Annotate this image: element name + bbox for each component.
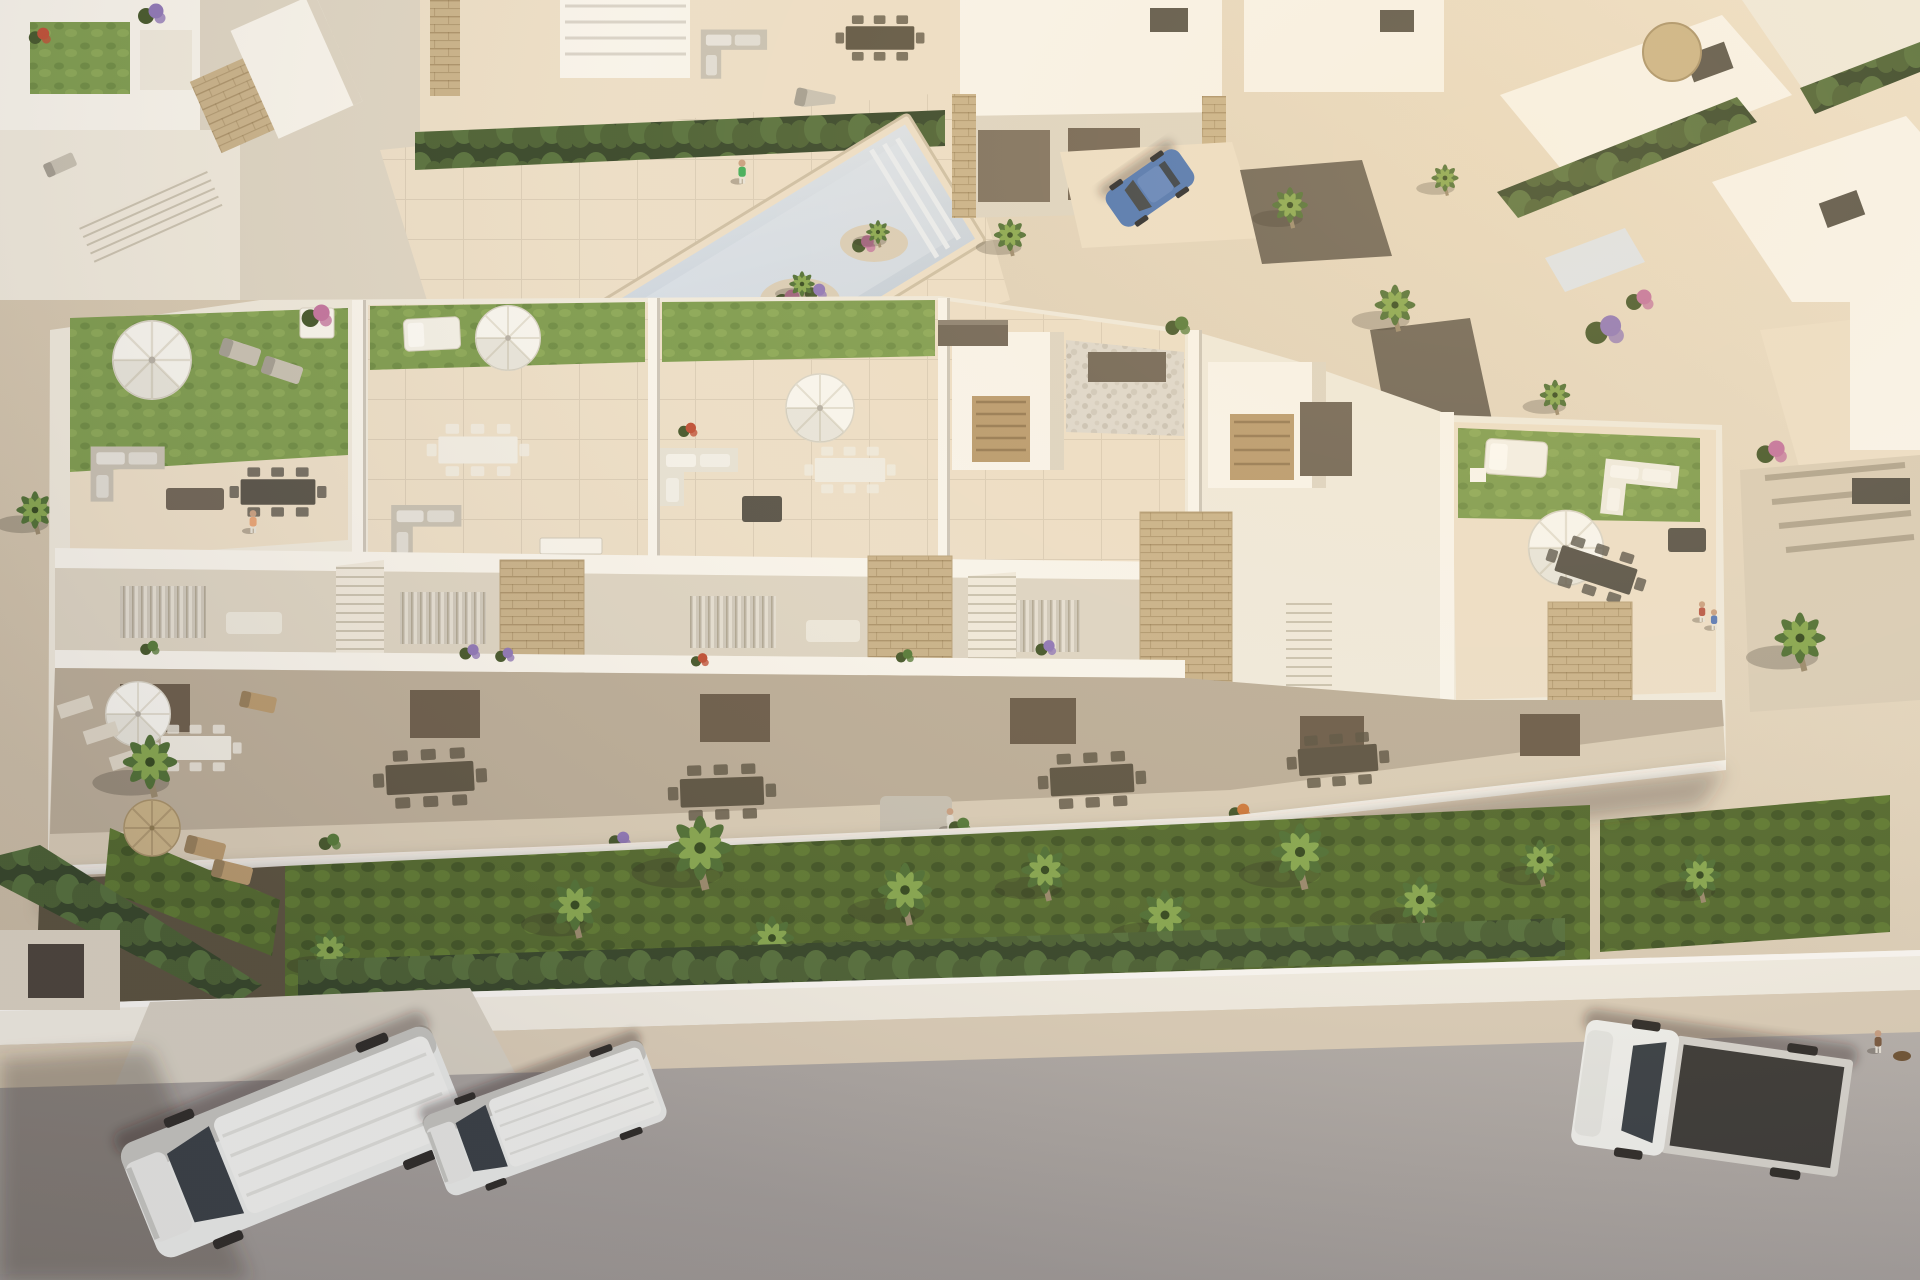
render-stage xyxy=(0,0,1920,1280)
aerial-render xyxy=(0,0,1920,1280)
sunlight-overlay xyxy=(0,0,1920,1280)
